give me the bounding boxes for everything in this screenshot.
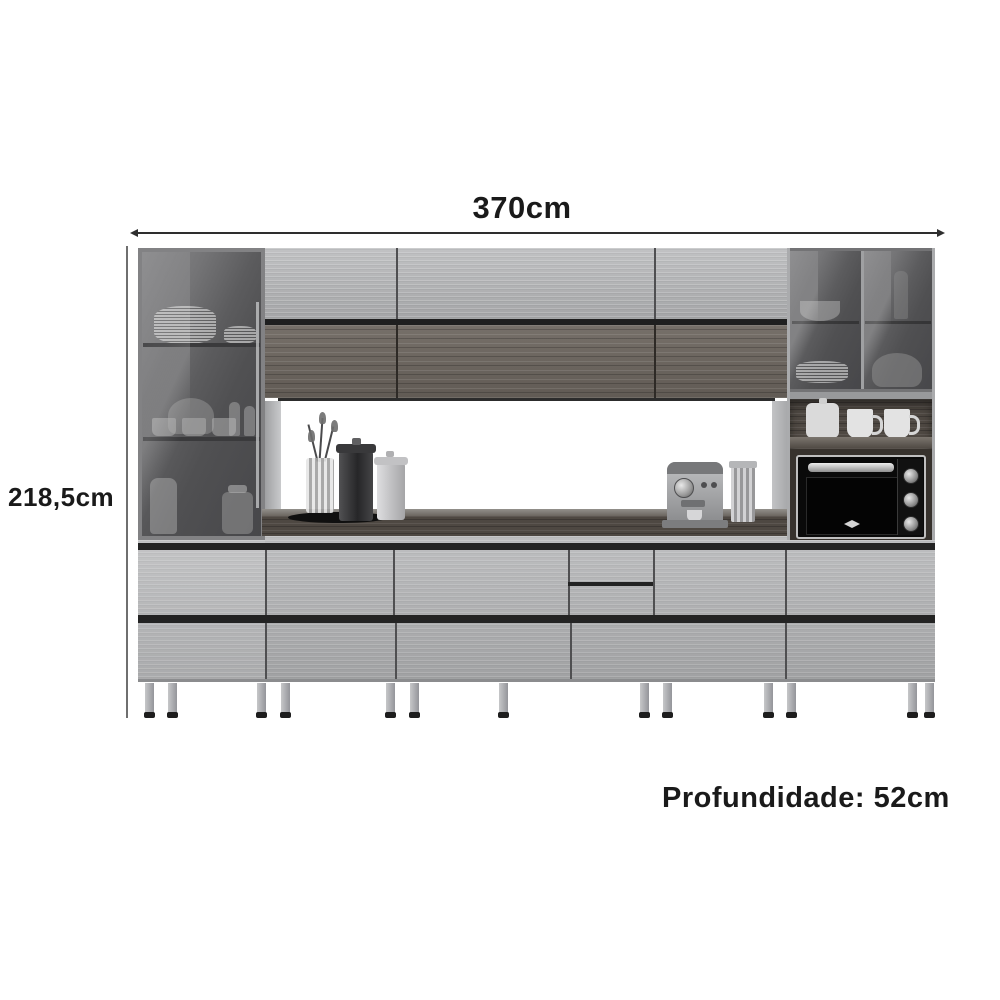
leg-foot [280, 712, 291, 718]
product-dimension-diagram: 370cm 218,5cm Profundidade: 52cm [0, 0, 1000, 1000]
ribbed-canister-lid [729, 461, 757, 468]
window-left-jamb [265, 401, 281, 509]
right-unit-board [787, 392, 935, 399]
utensil-head [331, 420, 338, 432]
microwave-control-panel [897, 459, 923, 535]
drawer-divider [653, 550, 655, 615]
cabinet-leg [787, 683, 796, 713]
left-base-section [138, 536, 265, 682]
base-top-strip [138, 543, 935, 550]
leg-foot [498, 712, 509, 718]
drawer-divider [265, 550, 267, 615]
brand-logo [844, 520, 860, 528]
ribbed-canister [731, 467, 755, 522]
portafilter [681, 500, 705, 507]
door-handle [256, 302, 259, 508]
door-divider [265, 623, 267, 679]
glass-door-divider [861, 251, 864, 389]
open-shelf-niche [790, 399, 932, 449]
right-unit-side [787, 248, 790, 540]
utensil-head [319, 412, 326, 424]
door-divider [785, 623, 787, 679]
upper-door-divider [654, 248, 656, 319]
cabinet-leg [908, 683, 917, 713]
knob [903, 492, 919, 508]
upper-doors-light [265, 248, 787, 319]
machine-button [701, 482, 707, 488]
cabinet-leg [764, 683, 773, 713]
canister-lid-tab [819, 398, 827, 404]
cabinet-leg [640, 683, 649, 713]
utensil-holder [306, 458, 334, 513]
coffee-machine [667, 462, 723, 525]
pitcher [150, 478, 177, 534]
leg-foot [662, 712, 673, 718]
right-glass-cabinet [787, 248, 935, 392]
saucer-stack [224, 326, 256, 344]
shelf [143, 343, 260, 347]
jar [222, 492, 253, 534]
plate-stack [154, 306, 216, 344]
upper-door-divider [396, 248, 398, 319]
shelf [865, 321, 931, 324]
microwave-handle [808, 463, 894, 472]
shelf [143, 437, 260, 441]
drawer-divider [785, 550, 787, 615]
machine-button [711, 482, 717, 488]
bottle [244, 406, 255, 436]
wood-door-divider [396, 325, 398, 398]
under-cabinet-edge [278, 398, 775, 401]
sugar-canister [806, 403, 839, 438]
right-glass-door-right [864, 251, 932, 389]
leg-foot [167, 712, 178, 718]
door-divider [395, 623, 397, 679]
cabinet-leg [168, 683, 177, 713]
utensil [318, 418, 323, 462]
cabinet-leg [663, 683, 672, 713]
cabinet-leg [257, 683, 266, 713]
knob [903, 516, 919, 532]
left-glass-cabinet [138, 248, 265, 540]
dark-canister-lid [336, 444, 376, 453]
light-canister-lid [374, 457, 408, 465]
bottle [229, 402, 240, 436]
machine-base [662, 520, 728, 528]
leg-foot [256, 712, 267, 718]
utensil-head [308, 430, 315, 442]
cabinet-leg [925, 683, 934, 713]
serving-tray [288, 512, 388, 523]
dark-canister [339, 451, 373, 521]
leg-foot [144, 712, 155, 718]
shelf [792, 321, 859, 324]
machine-top [667, 462, 723, 474]
light-canister [377, 463, 405, 520]
leg-foot [409, 712, 420, 718]
cup [152, 418, 176, 436]
kitchen-cabinet-set [0, 0, 1000, 1000]
leg-foot [639, 712, 650, 718]
mug [847, 409, 873, 438]
cabinet-leg [386, 683, 395, 713]
mug-handle [909, 415, 920, 435]
drawer-divider [393, 550, 395, 615]
window-right-jamb [772, 401, 787, 509]
cabinet-leg [499, 683, 508, 713]
wood-door-divider [654, 325, 656, 398]
leg-foot [763, 712, 774, 718]
base-cabinets [138, 536, 935, 682]
niche-shelf-board [790, 437, 932, 448]
vase [894, 271, 908, 319]
base-middle-strip [138, 615, 935, 623]
leg-foot [907, 712, 918, 718]
door-divider [570, 623, 572, 679]
bowl [800, 301, 840, 321]
leg-foot [786, 712, 797, 718]
mug [884, 409, 910, 438]
microwave-door-window [806, 477, 898, 535]
cabinet-leg [281, 683, 290, 713]
mug-handle [872, 415, 883, 435]
cup [182, 418, 206, 436]
jar-lid [228, 485, 247, 493]
canister-knob [386, 451, 394, 457]
knob [903, 468, 919, 484]
microwave-oven [796, 455, 926, 539]
left-glass-door [142, 252, 261, 536]
teapot [872, 353, 922, 387]
small-drawer-divider [568, 582, 653, 586]
machine-dial [674, 478, 694, 498]
base-bottom-edge [138, 679, 935, 682]
cabinet-leg [145, 683, 154, 713]
right-glass-door-left [790, 251, 861, 389]
leg-foot [385, 712, 396, 718]
right-unit-side [932, 248, 935, 540]
cabinet-leg [410, 683, 419, 713]
upper-doors-wood [265, 325, 787, 398]
plate-stack [796, 361, 848, 383]
canister-knob [352, 438, 361, 445]
leg-foot [924, 712, 935, 718]
